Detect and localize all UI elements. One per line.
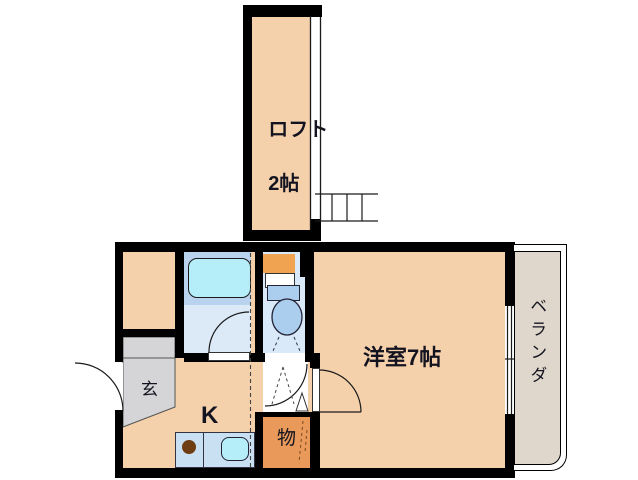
- wall-right-upper: [505, 242, 514, 306]
- loft-name: ロフト: [268, 119, 328, 141]
- burner: [182, 440, 196, 454]
- bathtub: [188, 258, 251, 298]
- wall-right-lower: [505, 414, 514, 478]
- wall-toilet-right-stub: [300, 252, 305, 277]
- wall-toilet-right: [305, 252, 314, 353]
- loft-label: ロフト 2帖: [246, 90, 328, 225]
- wall-storage-left: [255, 412, 263, 478]
- kitchen-label: K: [201, 401, 218, 431]
- floor-plan: ロフト 2帖 ベランダ: [0, 0, 638, 480]
- wall-left-upper: [115, 242, 123, 362]
- toilet-tank: [267, 285, 300, 301]
- kitchen-counter-divider: [203, 432, 204, 468]
- wall-under-closet: [123, 329, 184, 337]
- toilet-shelf: [263, 254, 295, 273]
- kitchen-sink: [221, 437, 249, 461]
- storage-label: 物: [277, 427, 296, 451]
- loft-wall-top-right-stub: [308, 5, 321, 17]
- main-door-leaf: [312, 368, 320, 412]
- bath-door-leaf: [208, 352, 250, 361]
- wall-entrance-bath: [175, 252, 184, 358]
- veranda-label: ベランダ: [526, 297, 547, 389]
- main-room-label: 洋室7帖: [363, 344, 441, 372]
- wall-storage-top: [263, 412, 312, 417]
- veranda-window: [505, 306, 514, 414]
- wall-main-lower: [310, 412, 320, 478]
- wall-top: [115, 242, 515, 252]
- toilet-door-area: [263, 362, 308, 412]
- entrance-label: 玄: [141, 379, 158, 400]
- loft-size: 2帖: [268, 173, 299, 195]
- bathroom-lower: [184, 305, 251, 353]
- wall-bath-toilet: [255, 252, 263, 353]
- toilet-door-opening: [265, 353, 305, 362]
- entrance-door-opening: [115, 363, 123, 410]
